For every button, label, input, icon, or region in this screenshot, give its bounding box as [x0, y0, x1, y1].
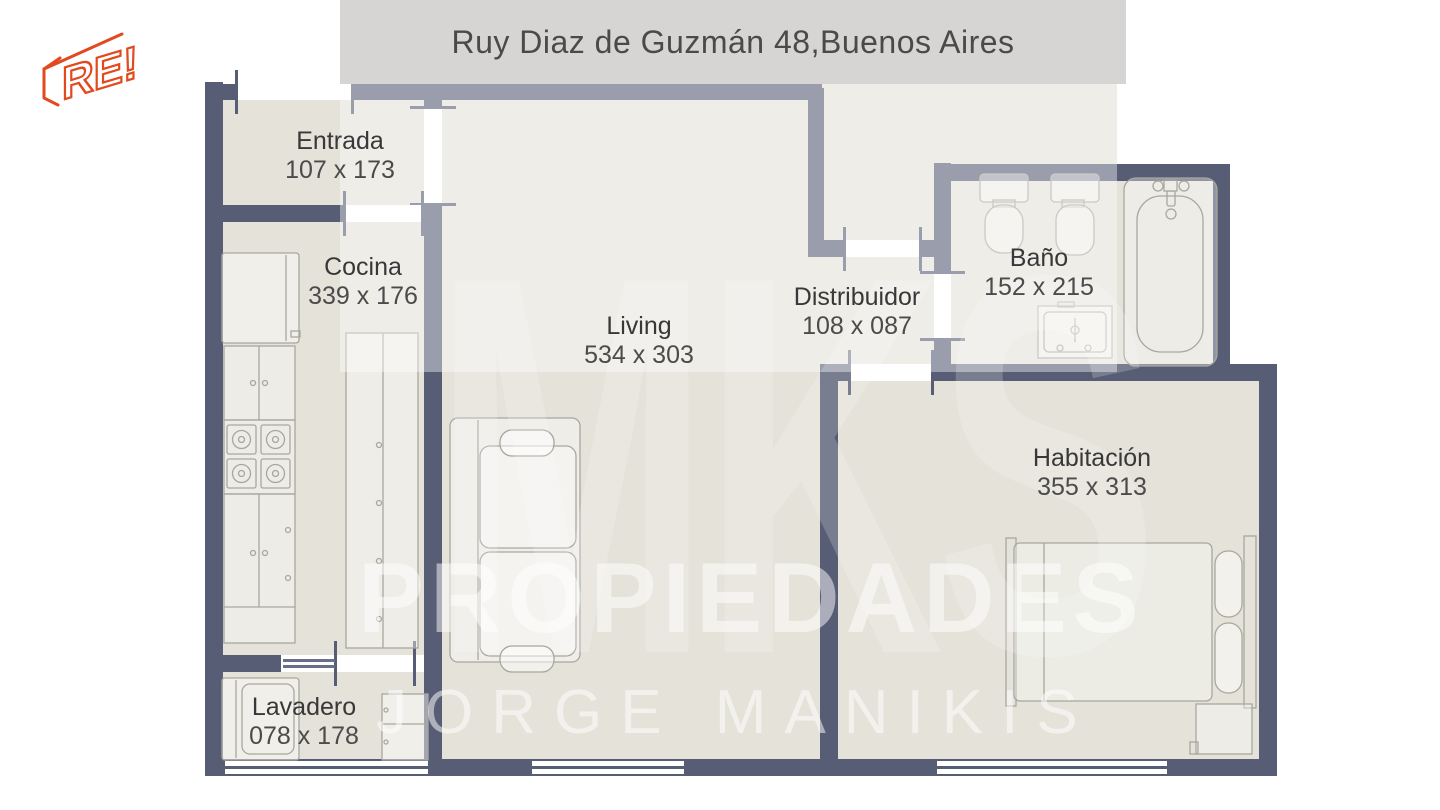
room-name: Entrada	[220, 127, 460, 156]
room-label-entrada: Entrada 107 x 173	[220, 127, 460, 185]
room-label-bano: Baño 152 x 215	[919, 244, 1159, 302]
bed	[1006, 536, 1256, 708]
bathroom-sink	[1038, 302, 1112, 358]
sofa	[450, 418, 580, 672]
re-logo-text: RE!	[62, 35, 138, 110]
floor-plan: MKS PROPIEDADES JORGE MANIKIS Entrada 10…	[0, 0, 1440, 810]
room-label-lavadero: Lavadero 078 x 178	[184, 693, 424, 751]
title-banner: Ruy Diaz de Guzmán 48,Buenos Aires	[340, 0, 1126, 84]
room-dims: 534 x 303	[519, 341, 759, 370]
room-label-habitacion: Habitación 355 x 313	[972, 444, 1212, 502]
room-dims: 152 x 215	[919, 273, 1159, 302]
stove	[224, 420, 295, 494]
room-name: Lavadero	[184, 693, 424, 722]
room-name: Habitación	[972, 444, 1212, 473]
room-name: Living	[519, 312, 759, 341]
kitchen-cabinet-upper	[224, 346, 295, 420]
re-logo: RE!	[36, 18, 146, 113]
bidet	[1051, 174, 1099, 255]
room-name: Cocina	[243, 253, 483, 282]
room-dims: 078 x 178	[184, 722, 424, 751]
room-dims: 339 x 176	[243, 282, 483, 311]
room-label-cocina: Cocina 339 x 176	[243, 253, 483, 311]
room-dims: 107 x 173	[220, 156, 460, 185]
room-dims: 108 x 087	[737, 312, 977, 341]
room-label-living: Living 534 x 303	[519, 312, 759, 370]
kitchen-counter	[346, 333, 418, 648]
room-name: Baño	[919, 244, 1159, 273]
room-dims: 355 x 313	[972, 473, 1212, 502]
furniture-layer	[0, 0, 1440, 810]
address-title: Ruy Diaz de Guzmán 48,Buenos Aires	[451, 24, 1014, 61]
toilet	[980, 174, 1028, 253]
nightstand	[1190, 704, 1252, 754]
kitchen-cabinet-lower	[224, 494, 295, 643]
